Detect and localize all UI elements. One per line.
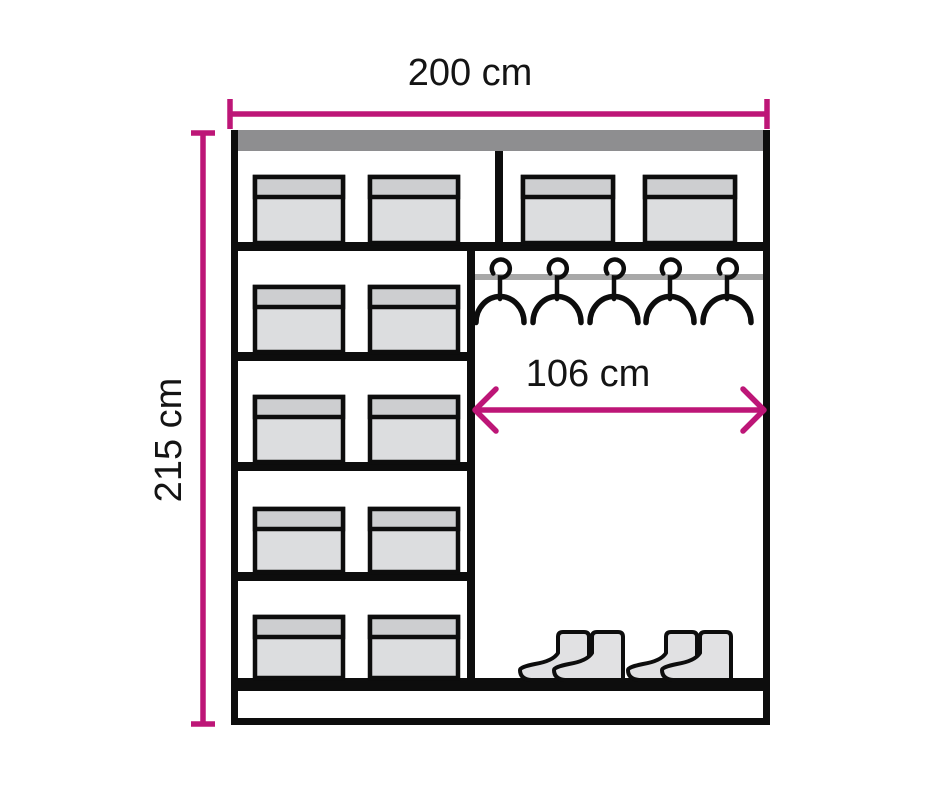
width-dimension-label: 200 cm [408,52,533,94]
boot-pair [628,632,731,680]
storage-box [255,177,343,243]
box-lid [255,177,343,197]
storage-box [645,177,735,243]
wardrobe-dimension-diagram: 200 cm 215 cm 106 cm [0,0,940,800]
inner-width-dimension-label: 106 cm [526,353,651,395]
boot-pairs [520,632,731,680]
height-dimension-label: 215 cm [148,378,190,503]
width-dimension: 200 cm [230,52,767,129]
diagram-svg: 200 cm 215 cm 106 cm [0,0,940,800]
box-lid [255,287,343,307]
box-lid [370,287,458,307]
center-divider [467,242,475,691]
box-lid [523,177,613,197]
box-lid [255,397,343,417]
top-panel [234,130,766,151]
hanger [703,260,751,323]
box-lid [370,509,458,529]
hanger [533,260,581,323]
box-lid [370,617,458,637]
storage-box [523,177,613,243]
inner-width-dimension: 106 cm [475,353,764,431]
height-dimension: 215 cm [148,133,215,724]
top-section-divider [495,151,503,245]
storage-box [370,177,458,243]
hangers [476,260,751,323]
right-wall [763,130,770,725]
left-wall [231,130,238,725]
storage-box [370,617,458,678]
hanger [590,260,638,323]
storage-box [370,287,458,352]
box-lid [370,397,458,417]
storage-box [255,397,343,462]
boot-pair [520,632,623,680]
storage-box [370,397,458,462]
storage-box [255,509,343,572]
box-lid [645,177,735,197]
storage-box [255,617,343,678]
storage-box [370,509,458,572]
storage-box [255,287,343,352]
box-lid [255,509,343,529]
bottom-edge [231,718,770,725]
hanger [646,260,694,323]
box-lid [370,177,458,197]
box-lid [255,617,343,637]
hanger [476,260,524,323]
